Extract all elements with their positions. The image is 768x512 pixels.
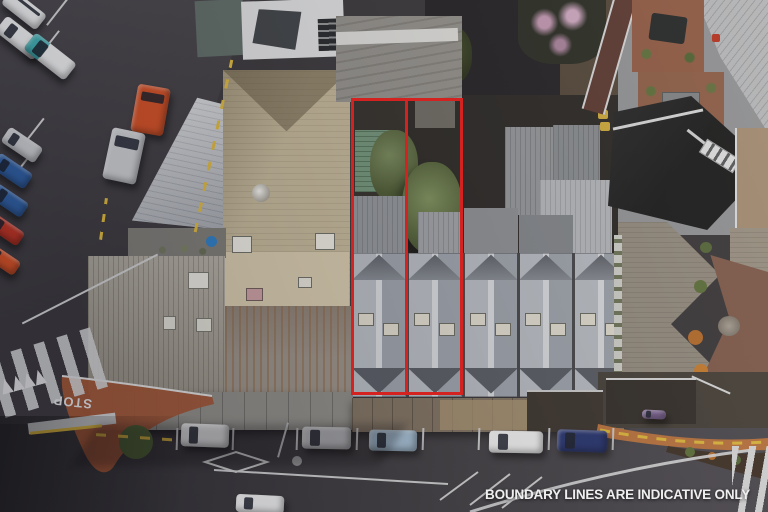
- building-shadow: [71, 424, 407, 466]
- boundary-outline-plot-2: [405, 98, 463, 395]
- aerial-photo: STOP BOUNDARY LINES ARE INDICATIVE ONLY: [0, 0, 768, 512]
- parked-car-darkblue: [557, 429, 608, 453]
- parked-car-purple: [642, 409, 666, 419]
- boundary-outline-plot-1: [351, 98, 408, 395]
- zebra-crossing-right: [732, 446, 768, 512]
- parked-car-white: [489, 431, 543, 454]
- disclaimer-text: BOUNDARY LINES ARE INDICATIVE ONLY: [485, 487, 750, 502]
- shrub: [685, 447, 695, 457]
